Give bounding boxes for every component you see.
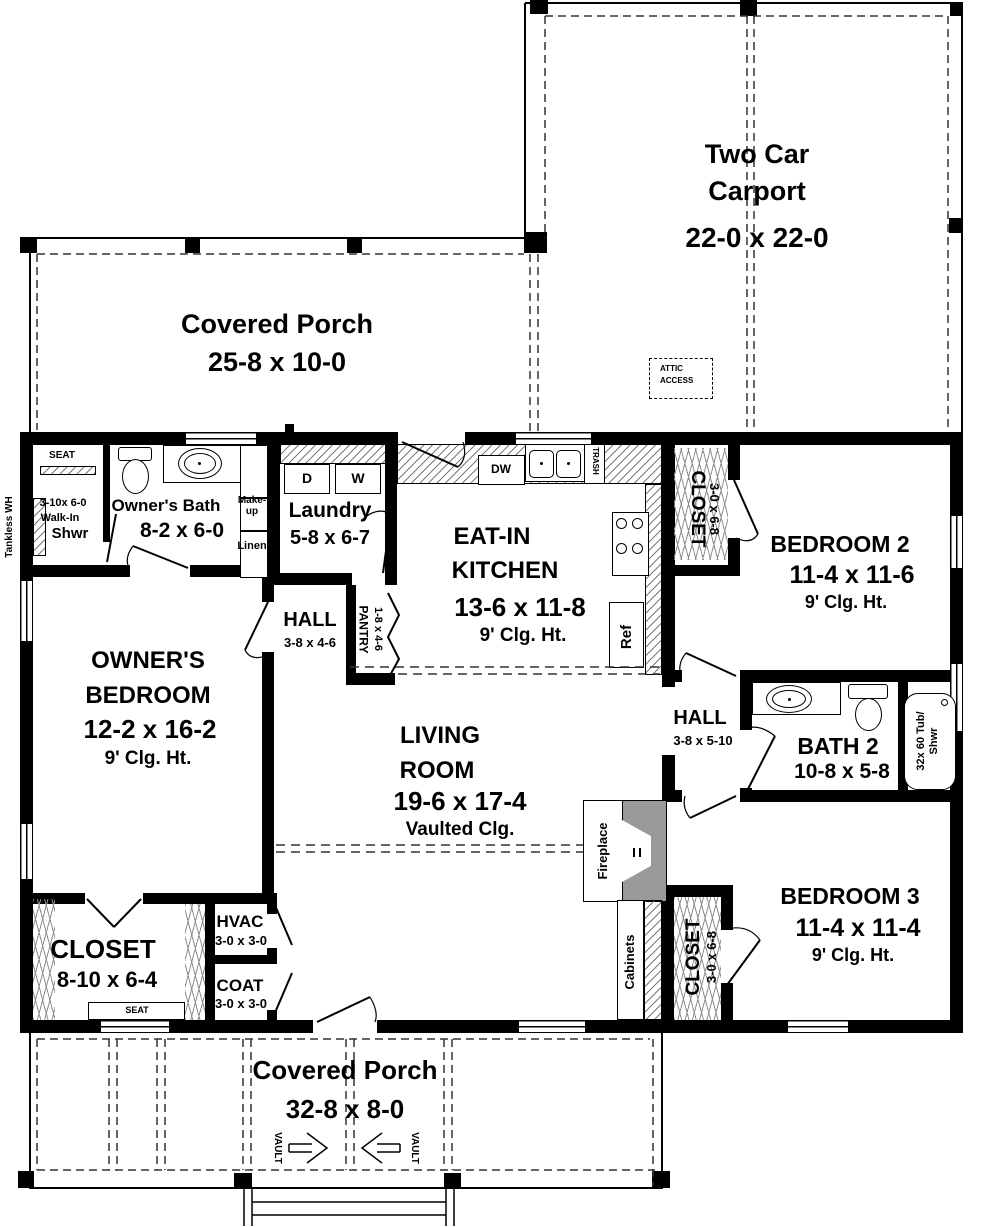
bedroom2-dims: 11-4 x 11-6 — [762, 562, 942, 588]
window — [20, 823, 33, 880]
refrigerator-label: Ref — [619, 612, 635, 662]
burner — [632, 518, 643, 529]
burner — [616, 543, 627, 554]
vault-label-right: VAULT — [407, 1123, 419, 1173]
wall — [950, 432, 963, 515]
attic-access-label-2: ACCESS — [660, 377, 710, 385]
owners-bedroom-clg: 9' Clg. Ht. — [88, 749, 208, 769]
post — [185, 238, 200, 253]
porch-bottom-name: Covered Porch — [195, 1057, 495, 1084]
porch-steps — [244, 1189, 454, 1226]
wall — [721, 983, 733, 1020]
wall — [847, 1020, 963, 1033]
closet-bed3-dims: 3-0 x 6-8 — [705, 917, 719, 997]
pantry-dims: 1-8 x 4-6 — [371, 589, 383, 669]
sink-drain — [198, 462, 201, 465]
wall — [33, 565, 130, 577]
tub-label-line2: Shwr — [928, 696, 941, 786]
tub-label: 32x 60 Tub/ Shwr — [915, 696, 943, 786]
owners-bedroom-name-2: BEDROOM — [68, 683, 228, 708]
sink-drain — [567, 462, 570, 465]
wall — [267, 948, 277, 964]
wall — [721, 897, 733, 930]
bedroom3-clg: 9' Clg. Ht. — [793, 946, 913, 965]
wall — [143, 893, 277, 904]
burner — [616, 518, 627, 529]
wall — [346, 673, 395, 685]
kitchen-name-1: EAT-IN — [422, 524, 562, 549]
tub-label-line1: 32x 60 Tub/ — [915, 696, 928, 786]
attic-access-label-1: ATTIC — [660, 365, 710, 373]
post — [740, 0, 757, 16]
firebox-tick — [633, 848, 635, 857]
living-clg: Vaulted Clg. — [390, 820, 530, 840]
floor-plan: Two Car Carport 22-0 x 22-0 ATTIC ACCESS… — [0, 0, 1000, 1227]
burner — [632, 543, 643, 554]
post — [652, 1171, 670, 1188]
shower-label-2: Walk-In — [25, 513, 95, 525]
closet-owners-dims: 8-10 x 6-4 — [32, 968, 182, 991]
coat-name: COAT — [200, 977, 280, 995]
shower-label-3: Shwr — [35, 526, 105, 542]
closet-bed2-name: CLOSET — [687, 459, 707, 559]
post — [524, 232, 547, 253]
post — [530, 0, 548, 14]
shower-bench — [40, 466, 96, 475]
hall2-name: HALL — [660, 708, 740, 729]
wall — [740, 790, 963, 802]
post — [444, 1173, 461, 1189]
owners-bedroom-dims: 12-2 x 16-2 — [60, 716, 240, 743]
wall — [584, 1020, 787, 1033]
tankless-wh-label: Tankless WH — [5, 482, 17, 572]
bedroom2-clg: 9' Clg. Ht. — [786, 593, 906, 612]
window — [518, 1020, 586, 1033]
carport-name-1: Two Car — [647, 140, 867, 168]
post — [234, 1173, 252, 1189]
shower-dims: 3-10x 6-0 — [28, 498, 98, 510]
dishwasher-label: DW — [481, 463, 521, 476]
wall — [662, 885, 674, 1020]
laundry-counter — [280, 444, 386, 464]
wall-bump — [285, 424, 294, 433]
laundry-dims: 5-8 x 6-7 — [270, 528, 390, 549]
owners-bath-name: Owner's Bath — [91, 497, 241, 515]
porch-top-name: Covered Porch — [117, 310, 437, 338]
wall — [20, 1020, 100, 1033]
wall — [740, 682, 752, 730]
post — [20, 237, 37, 253]
bath2-name: BATH 2 — [768, 734, 908, 758]
wall — [728, 437, 740, 480]
laundry-name: Laundry — [270, 500, 390, 522]
shower-seat-label: SEAT — [32, 451, 92, 462]
toilet-tank — [848, 684, 888, 699]
hall1-name: HALL — [270, 610, 350, 631]
pantry-name: PANTRY — [357, 590, 370, 670]
toilet-bowl — [122, 459, 149, 494]
wall — [662, 565, 740, 576]
kitchen-name-2: KITCHEN — [425, 558, 585, 583]
post — [18, 1171, 34, 1188]
wall — [740, 670, 963, 682]
carport-dims: 22-0 x 22-0 — [627, 223, 887, 252]
wall — [346, 585, 356, 685]
porch-top-dims: 25-8 x 10-0 — [147, 348, 407, 376]
post — [949, 218, 963, 233]
window — [185, 432, 257, 445]
toilet-bowl — [855, 698, 882, 731]
closet-bed2-dims: 3-0 x 6-8 — [707, 469, 721, 549]
vault-label-left: VAULT — [270, 1123, 282, 1173]
wall — [950, 567, 963, 663]
kitchen-dims: 13-6 x 11-8 — [425, 594, 615, 621]
wall — [20, 640, 33, 823]
linen-label: Linen — [230, 541, 274, 553]
coat-dims: 3-0 x 3-0 — [201, 997, 281, 1011]
hvac-name: HVAC — [200, 913, 280, 931]
fireplace-label: Fireplace — [596, 806, 610, 896]
bath2-dims: 10-8 x 5-8 — [772, 761, 912, 783]
carport-name-2: Carport — [647, 177, 867, 205]
wall — [267, 1010, 277, 1020]
living-name-1: LIVING — [375, 723, 505, 748]
hall2-dims: 3-8 x 5-10 — [658, 734, 748, 748]
makeup-label-2: up — [232, 507, 272, 518]
bedroom3-dims: 11-4 x 11-4 — [768, 915, 948, 941]
window — [950, 515, 963, 569]
wall — [262, 652, 274, 893]
vault-arrows — [289, 1133, 400, 1163]
hall1-dims: 3-8 x 4-6 — [270, 636, 350, 650]
owners-bath-dims: 8-2 x 6-0 — [112, 520, 252, 542]
bedroom3-name: BEDROOM 3 — [740, 884, 960, 908]
living-dims: 19-6 x 17-4 — [365, 788, 555, 815]
window — [20, 580, 33, 642]
wall — [280, 573, 352, 585]
owners-bedroom-name-1: OWNER'S — [68, 648, 228, 673]
hvac-dims: 3-0 x 3-0 — [201, 934, 281, 948]
sink-drain — [788, 698, 791, 701]
cabinets-label: Cabinets — [623, 917, 637, 1007]
wall — [662, 670, 682, 682]
closet-bed3-name: CLOSET — [684, 907, 704, 1007]
window — [787, 1020, 849, 1033]
firebox-tick — [639, 848, 641, 857]
cabinets-counter — [644, 900, 662, 1020]
makeup-label-1: Make- — [232, 496, 272, 507]
dryer-label: D — [297, 471, 317, 486]
closet-seat-label: SEAT — [107, 1006, 167, 1015]
wall — [262, 577, 274, 602]
closet-owners-name: CLOSET — [23, 936, 183, 963]
living-name-2: ROOM — [372, 758, 502, 783]
trash-label: TRASH — [589, 441, 599, 481]
sink-drain — [540, 462, 543, 465]
wall — [377, 1020, 518, 1033]
kitchen-clg: 9' Clg. Ht. — [458, 626, 588, 646]
washer-label: W — [348, 471, 368, 486]
wall — [168, 1020, 313, 1033]
post — [950, 2, 963, 16]
porch-bottom-dims: 32-8 x 8-0 — [235, 1096, 455, 1123]
post — [347, 238, 362, 253]
wall — [215, 955, 267, 964]
window — [100, 1020, 170, 1033]
bedroom2-name: BEDROOM 2 — [730, 532, 950, 556]
